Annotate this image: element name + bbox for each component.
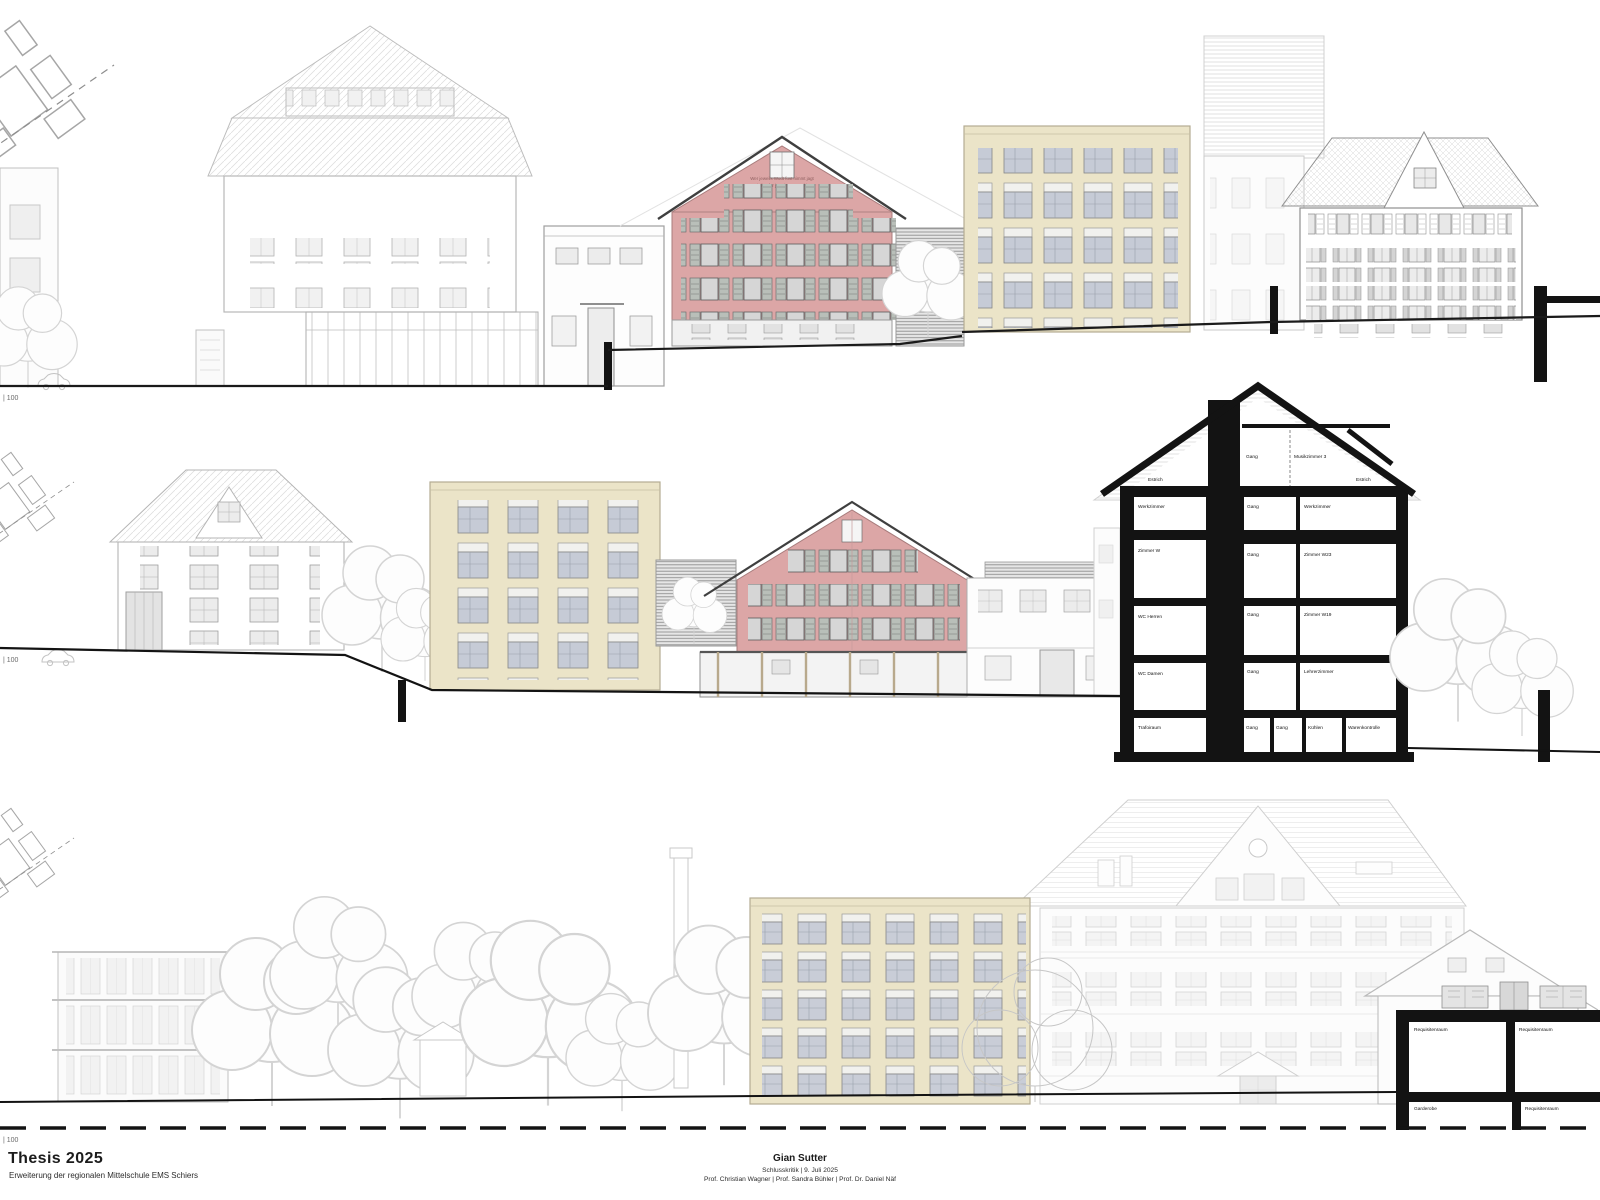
section-cut-marker — [1534, 286, 1547, 382]
ground-line — [1408, 748, 1600, 752]
site-key-plan — [0, 808, 74, 902]
room-label: Gang — [1246, 454, 1258, 460]
section-cut-marker — [1547, 296, 1600, 303]
room-label: Requisitenraum — [1519, 1027, 1553, 1033]
room-label: Gang — [1247, 669, 1259, 675]
site-key-plan — [0, 21, 114, 161]
event-line: Schlusskritik | 9. Juli 2025 — [0, 1167, 1600, 1174]
building-section: Estrich Gang Musikzimmer 3 Estrich Werkz… — [1094, 382, 1420, 762]
architectural-drawing: Wer jeweils Wodt fust nimmt jagt zweit l… — [0, 0, 1600, 1200]
room-label: Zimmer W23 — [1304, 552, 1332, 558]
room-label: Zimmer W — [1138, 548, 1161, 554]
section-cut-marker — [1270, 286, 1278, 334]
presentation-board: Wer jeweils Wodt fust nimmt jagt zweit l… — [0, 0, 1600, 1200]
room-label: WC Damen — [1138, 671, 1163, 677]
room-label: Estrich — [1148, 477, 1163, 483]
room-label: Gang — [1276, 725, 1288, 731]
stage-section: Requisitenraum Requisitenraum Garderobe … — [1396, 1010, 1600, 1130]
building-new-extension-cream — [964, 126, 1190, 332]
scale-label-middle: | 100 — [3, 657, 19, 664]
room-label: Warenkontrolle — [1348, 725, 1380, 731]
room-label: Lehrerzimmer — [1304, 669, 1334, 675]
elevation-row-middle: Estrich Gang Musikzimmer 3 Estrich Werkz… — [0, 382, 1600, 762]
room-label: Werkzimmer — [1138, 504, 1165, 510]
room-label: Werkzimmer — [1304, 504, 1331, 510]
room-label: Zimmer W19 — [1304, 612, 1332, 618]
room-label: Kühlen — [1308, 725, 1323, 731]
room-label: Gang — [1247, 612, 1259, 618]
room-label: Gang — [1247, 504, 1259, 510]
stair-core — [1208, 400, 1240, 758]
elevation-row-top: Wer jeweils Wodt fust nimmt jagt zweit l… — [0, 21, 1600, 402]
room-label: Gang — [1247, 552, 1259, 558]
house-inscription-line1: Wer jeweils Wodt fust nimmt jagt — [750, 176, 814, 181]
scale-label-top: | 100 — [3, 395, 19, 402]
car-sketch — [42, 650, 74, 666]
elevation-row-bottom: Requisitenraum Requisitenraum Garderobe … — [0, 800, 1600, 1144]
site-key-plan — [0, 452, 74, 546]
room-label: Requisitenraum — [1414, 1027, 1448, 1033]
building-new-extension-cream — [750, 898, 1030, 1104]
room-label: WC Herren — [1138, 614, 1162, 620]
room-label: Estrich — [1356, 477, 1371, 483]
author-name: Gian Sutter — [0, 1153, 1600, 1164]
scale-label-bottom: | 100 — [3, 1137, 19, 1144]
title-block-center: Gian Sutter Schlusskritik | 9. Juli 2025… — [0, 1153, 1600, 1183]
room-label: Trafoiraum — [1138, 725, 1161, 731]
professors-line: Prof. Christian Wagner | Prof. Sandra Bü… — [0, 1176, 1600, 1183]
section-cut-marker — [398, 680, 406, 722]
building-large-school-house — [196, 26, 538, 386]
building-new-extension-cream — [430, 482, 660, 690]
room-label: Requisitenraum — [1525, 1106, 1559, 1112]
building-hipped-house — [110, 470, 352, 650]
building-chalet — [1282, 132, 1538, 338]
room-label: Garderobe — [1414, 1106, 1437, 1112]
room-label: Musikzimmer 3 — [1294, 454, 1327, 460]
building-red-house-side — [700, 502, 998, 697]
room-label: Gang — [1246, 725, 1258, 731]
building-red-house: Wer jeweils Wodt fust nimmt jagt zweit l… — [658, 137, 906, 346]
